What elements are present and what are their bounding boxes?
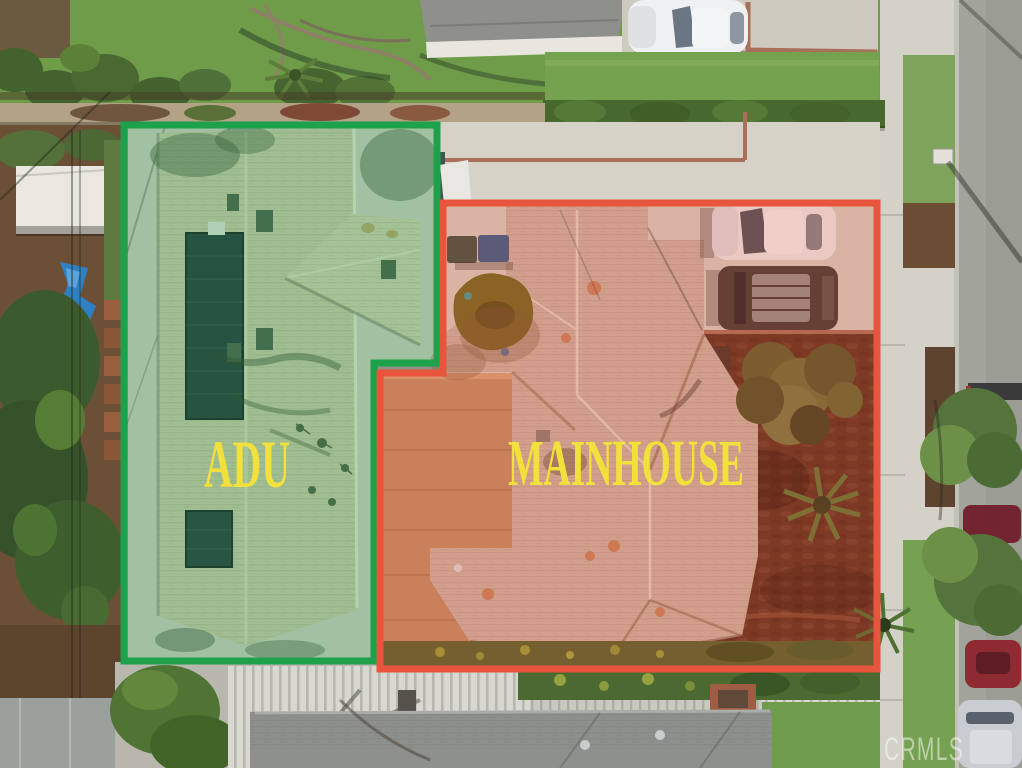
fence-line [0,92,545,100]
mainhouse-label: MAINHOUSE [508,427,744,500]
left-side-yard [0,92,125,768]
neighbor-house-roof [420,0,625,58]
aerial-photo-scene: ADU MAINHOUSE CRMLS [0,0,1022,768]
bottom-left-roof [0,698,115,768]
parked-van [958,700,1022,768]
adu-label: ADU [204,426,290,502]
crmls-watermark: CRMLS [884,731,964,767]
front-lawn-strip [545,52,879,108]
brick-planter [710,684,756,714]
bottom-neighbors [110,662,880,768]
aerial-listing-photo: ADU MAINHOUSE CRMLS [0,0,1022,768]
bottom-shingle-roof [250,700,772,768]
white-shed [16,166,106,236]
